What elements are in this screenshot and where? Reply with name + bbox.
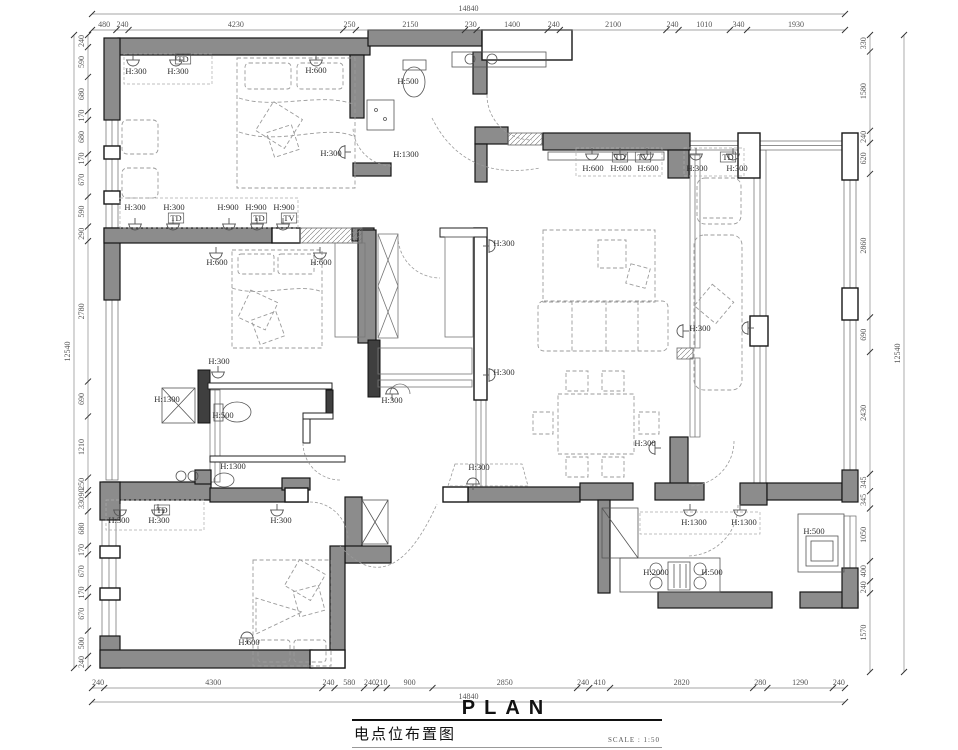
svg-text:H:300: H:300: [125, 66, 146, 76]
window-hatch: [677, 348, 693, 359]
point-label: TV: [281, 213, 296, 223]
dimension-value: 4230: [228, 20, 244, 29]
dimension-value: 240: [77, 656, 86, 668]
wall-segment: [670, 437, 688, 484]
svg-text:H:1300: H:1300: [681, 517, 707, 527]
dimension-value: 170: [77, 153, 86, 165]
svg-text:H:900: H:900: [245, 202, 266, 212]
svg-text:H:900: H:900: [273, 202, 294, 212]
study-chair: [697, 178, 741, 224]
point-label: H:1300: [681, 517, 707, 527]
wall-segment: [658, 592, 772, 608]
svg-text:H:300: H:300: [493, 367, 514, 377]
wall-segment-dark: [198, 370, 210, 423]
point-label: H:300: [148, 515, 169, 525]
wall-segment: [842, 470, 858, 502]
point-label: TD: [168, 213, 183, 223]
window: [844, 516, 856, 568]
dimension-value: 240: [364, 678, 376, 687]
dimension-value: 590: [77, 206, 86, 218]
svg-text:H:300: H:300: [726, 163, 747, 173]
wall-opening: [272, 228, 300, 243]
dimension-value: 240: [859, 581, 868, 593]
window: [102, 600, 116, 636]
point-label: TV: [635, 152, 650, 162]
svg-text:TD: TD: [253, 213, 264, 223]
point-label: H:300: [686, 163, 707, 173]
dimension-value: 4300: [205, 678, 221, 687]
dimension-value: 240: [666, 20, 678, 29]
sheet-name-cn: 电点位布置图: [354, 723, 456, 744]
walls-layer: [100, 30, 858, 668]
dimension-value: 620: [859, 152, 868, 164]
point-label: H:600: [610, 163, 631, 173]
dimension-value: 1570: [859, 625, 868, 641]
chaise-lounge: [694, 235, 742, 390]
dimension-value: 12540: [63, 342, 72, 362]
point-label: TD: [720, 152, 735, 162]
svg-text:H:500: H:500: [397, 76, 418, 86]
wall-opening: [842, 133, 858, 180]
svg-text:TD: TD: [722, 152, 733, 162]
point-label: H:600: [582, 163, 603, 173]
dimension-value: 1050: [859, 527, 868, 543]
dimension-value: 345: [859, 477, 868, 489]
dimension-value: 1930: [788, 20, 804, 29]
wall-opening: [443, 487, 468, 502]
wall-segment: [543, 133, 690, 150]
dimension-value: 670: [77, 565, 86, 577]
svg-text:H:300: H:300: [634, 438, 655, 448]
window: [106, 204, 118, 228]
wall-segment: [104, 228, 272, 243]
dimension-value: 2430: [859, 405, 868, 421]
wall-segment: [104, 38, 120, 120]
window: [106, 120, 118, 146]
label-cluster-boxes: [106, 54, 760, 534]
point-label: H:900: [217, 202, 238, 212]
dimension-value: 2860: [859, 238, 868, 254]
svg-text:H:600: H:600: [305, 65, 326, 75]
dimension-value: 680: [77, 131, 86, 143]
point-label: H:600: [305, 65, 326, 75]
dimension-value: 680: [77, 88, 86, 100]
svg-text:H:300: H:300: [381, 395, 402, 405]
wall-segment: [468, 487, 580, 502]
dimension-value: 400: [859, 565, 868, 577]
dimension-value: 170: [77, 110, 86, 122]
dimension-value: 1400: [504, 20, 520, 29]
point-label: H:500: [701, 567, 722, 577]
svg-text:H:300: H:300: [208, 356, 229, 366]
wall-opening: [104, 191, 120, 204]
dimension-chain: 14840: [89, 4, 848, 17]
point-label: H:300: [726, 163, 747, 173]
point-label: TD: [612, 152, 627, 162]
window: [690, 358, 700, 437]
svg-text:H:900: H:900: [217, 202, 238, 212]
dimension-value: 1210: [77, 439, 86, 455]
dimension-value: 345: [859, 494, 868, 506]
wall-segment: [350, 55, 364, 118]
window: [754, 346, 766, 488]
dimension-value: 240: [859, 131, 868, 143]
wall-segment: [580, 483, 633, 500]
svg-text:H:600: H:600: [238, 637, 259, 647]
svg-text:H:300: H:300: [468, 462, 489, 472]
point-label: H:300: [108, 515, 129, 525]
window-hatch: [508, 133, 542, 145]
wall-segment: [100, 650, 312, 668]
kitchen-sink-counter: [798, 514, 844, 572]
wall-opening: [104, 146, 120, 159]
dimension-value: 240: [322, 678, 334, 687]
lamp-symbol: [126, 54, 140, 66]
bed-2: [232, 250, 322, 348]
dimension-value: 2100: [605, 20, 621, 29]
dimension-value: 250: [77, 478, 86, 490]
point-label: H:300: [381, 395, 402, 405]
svg-text:TD: TD: [614, 152, 625, 162]
svg-text:H:600: H:600: [637, 163, 658, 173]
dimension-chain: 3301580240620286069024303453451050400240…: [859, 32, 873, 675]
point-label: H:600: [206, 257, 227, 267]
dimension-value: 250: [344, 20, 356, 29]
point-label: H:300: [493, 238, 514, 248]
point-label: H:300: [270, 515, 291, 525]
wall-segment: [345, 546, 391, 563]
plan-title: PLAN: [352, 698, 662, 718]
window: [844, 180, 856, 288]
wall-opening: [842, 288, 858, 320]
wall-segment: [475, 144, 487, 182]
point-label: H:500: [212, 410, 233, 420]
dimension-value: 170: [77, 586, 86, 598]
bath1-cabinet: [367, 100, 394, 130]
partition-wall: [303, 419, 310, 443]
point-label: H:1300: [731, 517, 757, 527]
duct-shaft: [362, 500, 388, 544]
window: [106, 159, 118, 191]
dimension-value: 290: [77, 228, 86, 240]
partition-wall: [208, 383, 332, 389]
partition-wall: [440, 228, 487, 237]
window: [690, 141, 738, 150]
point-label: TD: [154, 505, 169, 515]
dimension-value: 240: [548, 20, 560, 29]
svg-text:H:300: H:300: [124, 202, 145, 212]
window: [102, 558, 116, 588]
dimension-value: 14840: [459, 4, 479, 13]
svg-text:H:300: H:300: [167, 66, 188, 76]
point-label: H:300: [124, 202, 145, 212]
point-label: H:300: [163, 202, 184, 212]
svg-text:H:300: H:300: [686, 163, 707, 173]
dimension-value: 670: [77, 174, 86, 186]
dimension-value: 330: [859, 37, 868, 49]
point-label: H:300: [634, 438, 655, 448]
point-label: H:1300: [393, 149, 419, 159]
wall-segment: [598, 500, 610, 593]
svg-text:H:600: H:600: [610, 163, 631, 173]
lamp-symbol: [733, 504, 747, 516]
wall-segment: [358, 230, 376, 343]
svg-text:H:600: H:600: [206, 257, 227, 267]
point-label: H:900: [245, 202, 266, 212]
point-label: H:300: [167, 66, 188, 76]
svg-text:H:500: H:500: [803, 526, 824, 536]
window: [690, 155, 700, 348]
dimension-value: 500: [77, 637, 86, 649]
dimension-value: 280: [754, 678, 766, 687]
dimension-value: 680: [77, 523, 86, 535]
wall-opening: [100, 588, 120, 600]
master-bed: [237, 58, 355, 188]
floor-plan-sheet: 4802404230250215023014002402100240101034…: [0, 0, 958, 750]
point-label: TD: [175, 54, 190, 64]
dimension-value: 690: [859, 329, 868, 341]
title-block: PLAN 电点位布置图 SCALE : 1:50: [352, 698, 662, 748]
dimension-value: 690: [77, 393, 86, 405]
wall-segment: [842, 568, 858, 608]
svg-text:H:500: H:500: [212, 410, 233, 420]
dimension-chain: 2404300240580240210900285024041028202801…: [89, 678, 848, 691]
floor-plan-drawing: 4802404230250215023014002402100240101034…: [0, 0, 958, 750]
lamp-symbol: [211, 366, 225, 378]
point-label: H:300: [493, 367, 514, 377]
dimension-value: 240: [116, 20, 128, 29]
scale-label: SCALE : 1:50: [608, 736, 660, 744]
dimension-value: 480: [98, 20, 110, 29]
dimension-value: 240: [92, 678, 104, 687]
wall-segment: [475, 127, 508, 144]
dimension-value: 1010: [696, 20, 712, 29]
point-label: H:300: [208, 356, 229, 366]
svg-text:H:1300: H:1300: [154, 394, 180, 404]
point-label: H:600: [238, 637, 259, 647]
master-armchairs: [122, 120, 158, 198]
lamp-symbol: [683, 504, 697, 516]
dimension-value: 230: [465, 20, 477, 29]
svg-text:H:500: H:500: [701, 567, 722, 577]
dimension-value: 240: [77, 35, 86, 47]
dimension-value: 900: [404, 678, 416, 687]
bedroom2-chair: [238, 290, 285, 345]
dimension-chain: 12540: [63, 32, 77, 671]
dimension-value: 330: [77, 497, 86, 509]
svg-text:H:300: H:300: [493, 238, 514, 248]
svg-text:TV: TV: [283, 213, 295, 223]
svg-text:H:300: H:300: [108, 515, 129, 525]
wall-segment: [118, 38, 370, 55]
partition-wall: [303, 413, 333, 419]
dimension-value: 90: [77, 488, 86, 496]
dimension-value: 2150: [402, 20, 418, 29]
svg-text:H:600: H:600: [582, 163, 603, 173]
sofa: [538, 301, 668, 351]
dimension-value: 2780: [77, 303, 86, 319]
wall-segment: [368, 30, 482, 46]
window: [844, 320, 856, 470]
svg-text:H:300: H:300: [689, 323, 710, 333]
svg-text:H:1300: H:1300: [220, 461, 246, 471]
point-label: H:600: [637, 163, 658, 173]
svg-text:H:1300: H:1300: [731, 517, 757, 527]
dining-set: [533, 371, 659, 477]
svg-text:H:600: H:600: [310, 257, 331, 267]
dimension-value: 670: [77, 608, 86, 620]
svg-text:H:2000: H:2000: [643, 567, 669, 577]
dimension-value: 240: [577, 678, 589, 687]
point-label: TD: [251, 213, 266, 223]
point-label: H:900: [273, 202, 294, 212]
point-label: H:300: [125, 66, 146, 76]
point-label: H:300: [320, 148, 341, 158]
lamp-symbol: [677, 324, 689, 338]
dimension-chain: 2405906801706801706705902902780690121025…: [77, 32, 91, 671]
window-hatch: [300, 228, 362, 243]
point-label: H:500: [397, 76, 418, 86]
point-label: H:1300: [220, 461, 246, 471]
point-label: H:2000: [643, 567, 669, 577]
wall-segment: [195, 470, 211, 484]
wall-segment: [740, 483, 767, 505]
svg-text:TD: TD: [156, 505, 167, 515]
window: [106, 300, 118, 480]
svg-text:H:300: H:300: [163, 202, 184, 212]
point-label: H:300: [468, 462, 489, 472]
dimension-value: 1290: [792, 678, 808, 687]
dimension-value: 1580: [859, 83, 868, 99]
svg-text:TD: TD: [177, 54, 188, 64]
living-rug: [543, 230, 655, 302]
svg-text:TD: TD: [170, 213, 181, 223]
dimension-chain: 12540: [893, 32, 907, 675]
dimension-value: 2820: [674, 678, 690, 687]
svg-text:H:300: H:300: [320, 148, 341, 158]
window: [476, 400, 486, 487]
svg-text:H:1300: H:1300: [393, 149, 419, 159]
svg-text:H:300: H:300: [270, 515, 291, 525]
dimension-value: 590: [77, 56, 86, 68]
dimension-value: 410: [594, 678, 606, 687]
wall-opening: [474, 228, 487, 400]
wall-opening: [310, 650, 345, 668]
wall-segment: [767, 483, 842, 500]
point-label: H:300: [689, 323, 710, 333]
point-label: H:1300: [154, 394, 180, 404]
closet-shelving: [335, 234, 473, 394]
point-label: H:600: [310, 257, 331, 267]
point-label: H:500: [803, 526, 824, 536]
dimension-value: 170: [77, 544, 86, 556]
dimension-value: 240: [833, 678, 845, 687]
svg-text:H:300: H:300: [148, 515, 169, 525]
dimension-value: 210: [375, 678, 387, 687]
svg-text:TV: TV: [637, 152, 649, 162]
dimension-value: 12540: [893, 344, 902, 364]
dimension-value: 2850: [497, 678, 513, 687]
dimension-value: 580: [343, 678, 355, 687]
window: [760, 141, 842, 150]
wall-opening: [750, 316, 768, 346]
dimension-value: 340: [732, 20, 744, 29]
wall-opening: [285, 488, 308, 502]
wall-opening: [100, 546, 120, 558]
